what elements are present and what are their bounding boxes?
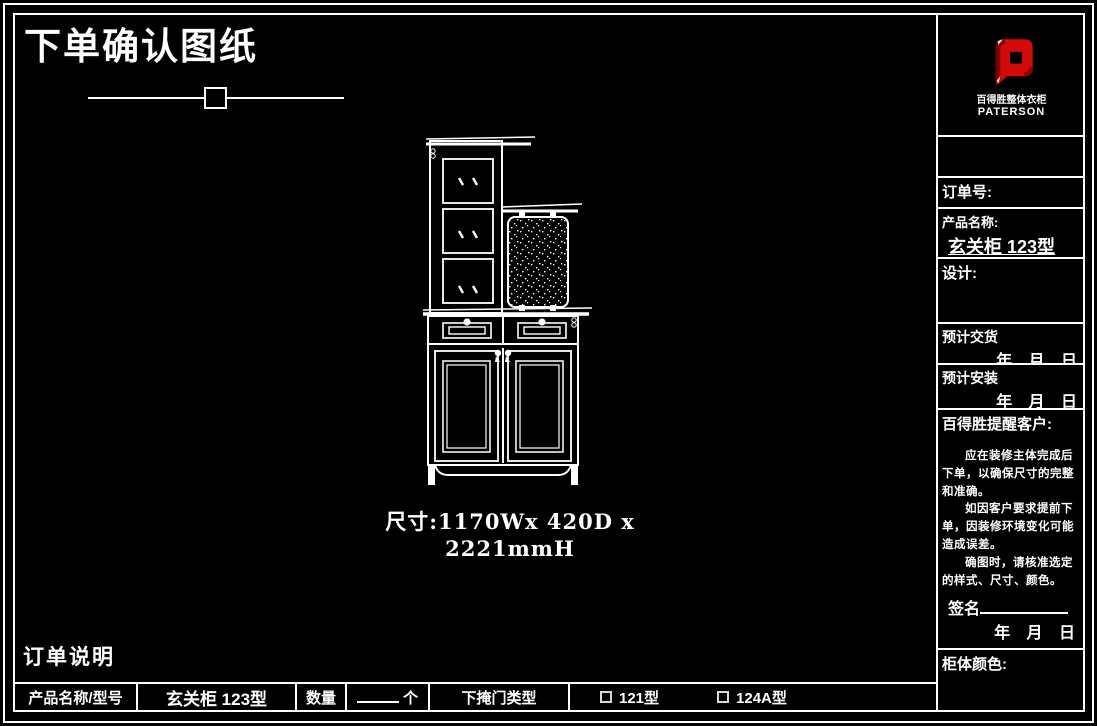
drawer-band	[428, 316, 578, 344]
order-note-label: 订单说明	[23, 641, 115, 671]
tower-outline	[430, 141, 502, 313]
signature-label: 签名	[948, 601, 980, 618]
checkbox-121[interactable]	[600, 691, 612, 703]
mid-shelf-edge	[502, 204, 582, 207]
drawer-1-plate-inner	[449, 327, 485, 334]
option-121-label: 121型	[619, 687, 659, 708]
footer-door-type-options: 121型 124A型	[570, 684, 936, 710]
qty-unit: 个	[403, 687, 418, 708]
qty-blank-line	[357, 691, 399, 703]
drawer-2-knob	[538, 318, 545, 325]
tower-box-3	[443, 259, 493, 303]
order-number-field: 订单号:	[938, 178, 1085, 209]
door-left-panel-inner	[447, 365, 486, 448]
notice-line-2: 如因客户要求提前下单，因装修环境变化可能造成误差。	[942, 501, 1081, 554]
footer-product-label: 产品名称/型号	[15, 684, 138, 710]
brand-name-en: PATERSON	[978, 106, 1046, 118]
notice-line-1: 应在装修主体完成后下单，以确保尺寸的完整和准确。	[942, 448, 1081, 501]
designer-field: 设计:	[938, 259, 1085, 324]
install-label: 预计安装	[942, 368, 1081, 388]
option-124a: 124A型	[717, 687, 787, 708]
door-right-panel	[516, 361, 563, 452]
base-top-edge	[423, 308, 592, 310]
footer-door-type-label: 下掩门类型	[430, 684, 570, 710]
footer-table-row: 产品名称/型号 玄关柜 123型 数量 个 下掩门类型 121型 124A型	[15, 682, 936, 710]
drawer-2-plate-inner	[524, 327, 560, 334]
notice-line-3: 确图时，请核准选定的样式、尺寸、颜色。	[942, 555, 1081, 591]
blank-row	[938, 137, 1085, 178]
door-left	[435, 351, 498, 461]
shelf-pin-marks	[459, 178, 477, 293]
delivery-label: 预计交货	[942, 327, 1081, 347]
footer-qty-field: 个	[347, 684, 430, 710]
signature-block: 签名 年 月 日	[942, 595, 1081, 645]
order-confirmation-sheet: 下单确认图纸	[0, 0, 1097, 726]
footer-qty-label: 数量	[297, 684, 347, 710]
cabinet-drawing	[400, 126, 630, 504]
apron-arch	[435, 465, 571, 475]
customer-notice: 百得胜提醒客户: 应在装修主体完成后下单，以确保尺寸的完整和准确。 如因客户要求…	[938, 410, 1085, 650]
dimension-label: 尺寸:1170Wx 420D x 2221mmH	[330, 506, 690, 561]
paterson-logo-icon	[985, 32, 1039, 88]
product-name-field: 产品名称: 玄关柜 123型	[938, 209, 1085, 259]
delivery-field: 预计交货 年 月 日	[938, 324, 1085, 365]
cabinet-color-field: 柜体颜色:	[938, 650, 1085, 710]
title-block: 百得胜整体衣柜 PATERSON 订单号: 产品名称: 玄关柜 123型 设计:…	[936, 13, 1085, 712]
tower-box-2	[443, 209, 493, 253]
signature-date: 年 月 日	[948, 619, 1079, 643]
title-underline-square	[204, 87, 227, 109]
top-shelf-edge	[426, 137, 535, 139]
checkbox-124a[interactable]	[717, 691, 729, 703]
tower-box-1	[443, 159, 493, 203]
logo-block: 百得胜整体衣柜 PATERSON	[938, 15, 1085, 137]
door-left-panel	[443, 361, 490, 452]
signature-line	[980, 600, 1068, 614]
option-124a-label: 124A型	[736, 687, 787, 708]
brand-name-cn: 百得胜整体衣柜	[977, 91, 1047, 106]
leg-right	[571, 465, 578, 485]
leg-left	[428, 465, 435, 485]
product-name-value: 玄关柜 123型	[948, 233, 1081, 259]
door-right-panel-inner	[520, 365, 559, 448]
option-121: 121型	[600, 687, 659, 708]
door-right	[508, 351, 571, 461]
install-date: 年 月 日	[942, 388, 1081, 410]
drawer-1-knob	[463, 318, 470, 325]
mirror-panel	[508, 217, 568, 307]
page-title: 下单确认图纸	[24, 16, 258, 70]
product-name-label: 产品名称:	[942, 215, 998, 230]
footer-product-value: 玄关柜 123型	[138, 684, 297, 710]
install-field: 预计安装 年 月 日	[938, 365, 1085, 410]
delivery-date: 年 月 日	[942, 347, 1081, 365]
notice-title: 百得胜提醒客户:	[942, 413, 1081, 434]
